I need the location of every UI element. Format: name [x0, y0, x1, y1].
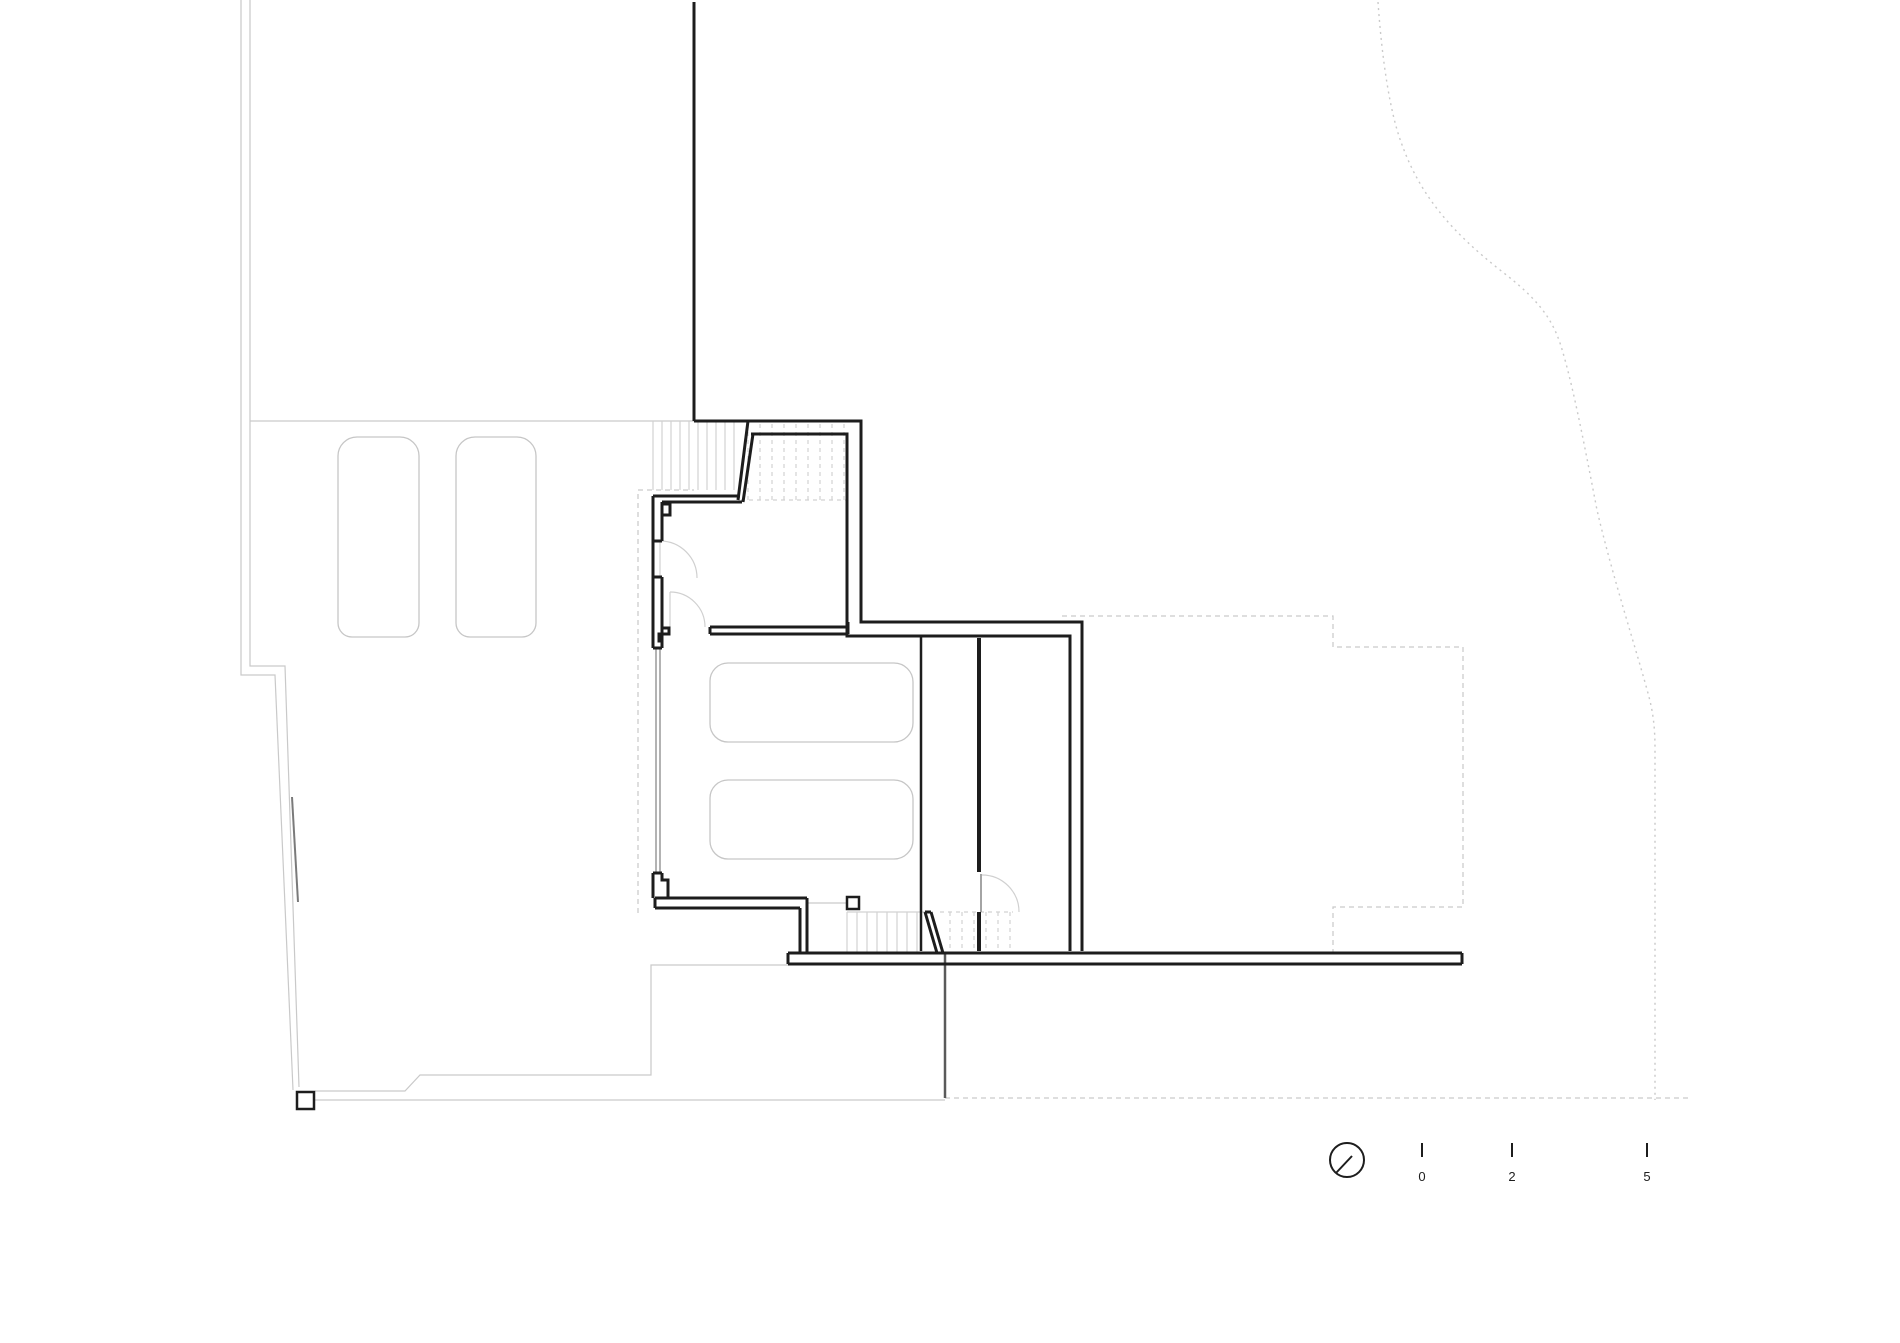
garage-car — [710, 663, 913, 742]
plan-layers — [241, 0, 1692, 1177]
scale-bar: 0 2 5 — [1418, 1169, 1650, 1184]
garage-car — [710, 780, 913, 859]
wall — [710, 622, 848, 634]
parking-car — [338, 437, 419, 637]
wall — [788, 953, 1462, 964]
north-marker-icon — [1336, 1156, 1352, 1173]
wall — [925, 912, 943, 953]
wall — [655, 898, 807, 908]
column-square — [847, 897, 859, 909]
wall — [800, 898, 807, 953]
floor-plan-drawing: 0 2 5 — [0, 0, 1900, 1343]
courtyard-lines — [315, 965, 788, 1091]
floor-plan-page: 0 2 5 — [0, 0, 1900, 1343]
stair-treads-entry — [653, 421, 734, 490]
wall — [861, 636, 1070, 951]
column-square — [297, 1092, 314, 1109]
scale-label-2: 2 — [1508, 1169, 1515, 1184]
stair-treads-lower — [847, 912, 917, 952]
door-swing-arc — [660, 541, 697, 578]
scale-label-0: 0 — [1418, 1169, 1425, 1184]
wall — [751, 434, 847, 622]
upper-floor-outline-dashed — [1062, 616, 1463, 953]
door-swing-arc — [982, 875, 1019, 912]
scale-label-5: 5 — [1643, 1169, 1650, 1184]
wall — [653, 873, 668, 898]
upper-floor-outline-dashed — [638, 490, 694, 913]
site-boundary-left — [241, 0, 293, 1090]
door-swing-arc — [670, 592, 705, 627]
site-boundary-dotted-east — [1378, 2, 1655, 1100]
parking-car — [456, 437, 536, 637]
site-boundary-left — [250, 0, 299, 1087]
